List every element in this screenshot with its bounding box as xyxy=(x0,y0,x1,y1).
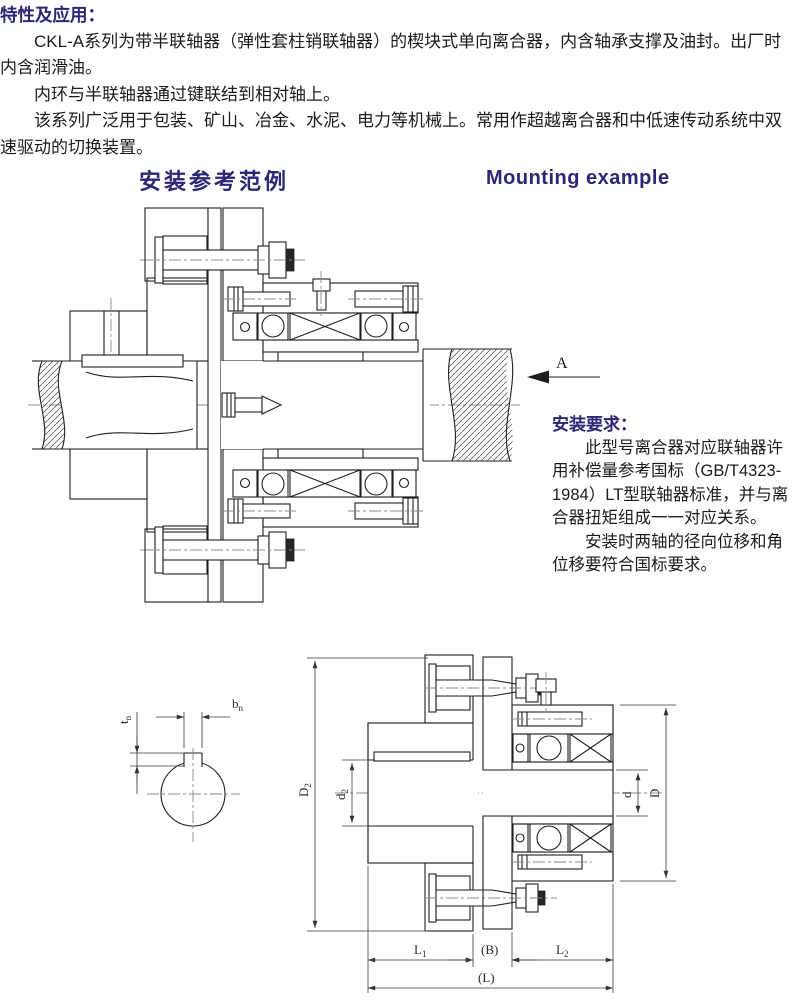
dim-label-clutch-od: D xyxy=(647,789,662,798)
housing-screw-bottom xyxy=(348,498,425,524)
clutch-half-section xyxy=(483,657,613,929)
elastic-pin-bottom xyxy=(148,526,302,574)
view-arrow: A xyxy=(527,355,600,384)
dim-label-coupling-od: D2 xyxy=(296,783,313,797)
mounting-example-drawing: A xyxy=(22,198,622,618)
intro-paragraph-2: 内环与半联轴器通过键联结到相对轴上。 xyxy=(0,82,798,109)
dim-label-key-depth: tn xyxy=(116,715,133,724)
dim-label-len-total: (L) xyxy=(478,970,495,985)
clutch-bearings-top xyxy=(233,313,416,340)
requirements-paragraph-2: 安装时两轴的径向位移和角位移要符合国标要求。 xyxy=(552,531,799,578)
keyway-section: bn tn xyxy=(116,696,244,842)
requirements-heading: 安装要求： xyxy=(552,413,799,437)
intro-section: 特性及应用： CKL-A系列为带半联轴器（弹性套柱销联轴器）的楔块式单向离合器，… xyxy=(0,2,798,161)
set-screw xyxy=(313,271,330,316)
clutch-bearings-bottom xyxy=(233,470,416,497)
flange-screw-top xyxy=(222,287,296,311)
catalog-page: 特性及应用： CKL-A系列为带半联轴器（弹性套柱销联轴器）的楔块式单向离合器，… xyxy=(0,0,800,1001)
dim-label-len-right: L2 xyxy=(556,942,568,959)
dim-label-coupling-bore: d2 xyxy=(333,789,350,800)
requirements-section: 安装要求： 此型号离合器对应联轴器许用补偿量参考国标（GB/T4323-1984… xyxy=(552,413,799,578)
dim-label-gap: (B) xyxy=(481,942,498,957)
section-title-zh: 安装参考范例 xyxy=(139,164,289,196)
dimension-lines: D2 d2 d D L1 (B) xyxy=(296,658,676,993)
dim-label-len-left: L1 xyxy=(414,942,426,959)
view-arrow-label: A xyxy=(556,355,568,372)
intro-heading: 特性及应用： xyxy=(0,2,798,29)
intro-paragraph-3: 该系列广泛用于包装、矿山、冶金、水泥、电力等机械上。常用作超越离合器和中低速传动… xyxy=(0,108,798,161)
flange-screw-bottom xyxy=(222,499,296,523)
elastic-pin-top xyxy=(148,236,302,284)
housing-screw-top xyxy=(348,286,425,312)
requirements-paragraph-1: 此型号离合器对应联轴器许用补偿量参考国标（GB/T4323-1984）LT型联轴… xyxy=(552,437,799,531)
dimension-drawing: bn tn xyxy=(95,630,705,1001)
intro-paragraph-1: CKL-A系列为带半联轴器（弹性套柱销联轴器）的楔块式单向离合器，内含轴承支撑及… xyxy=(0,29,798,82)
section-title-en: Mounting example xyxy=(486,167,670,190)
dim-label-clutch-bore: d xyxy=(619,791,634,798)
dim-label-key-width: bn xyxy=(232,696,244,713)
